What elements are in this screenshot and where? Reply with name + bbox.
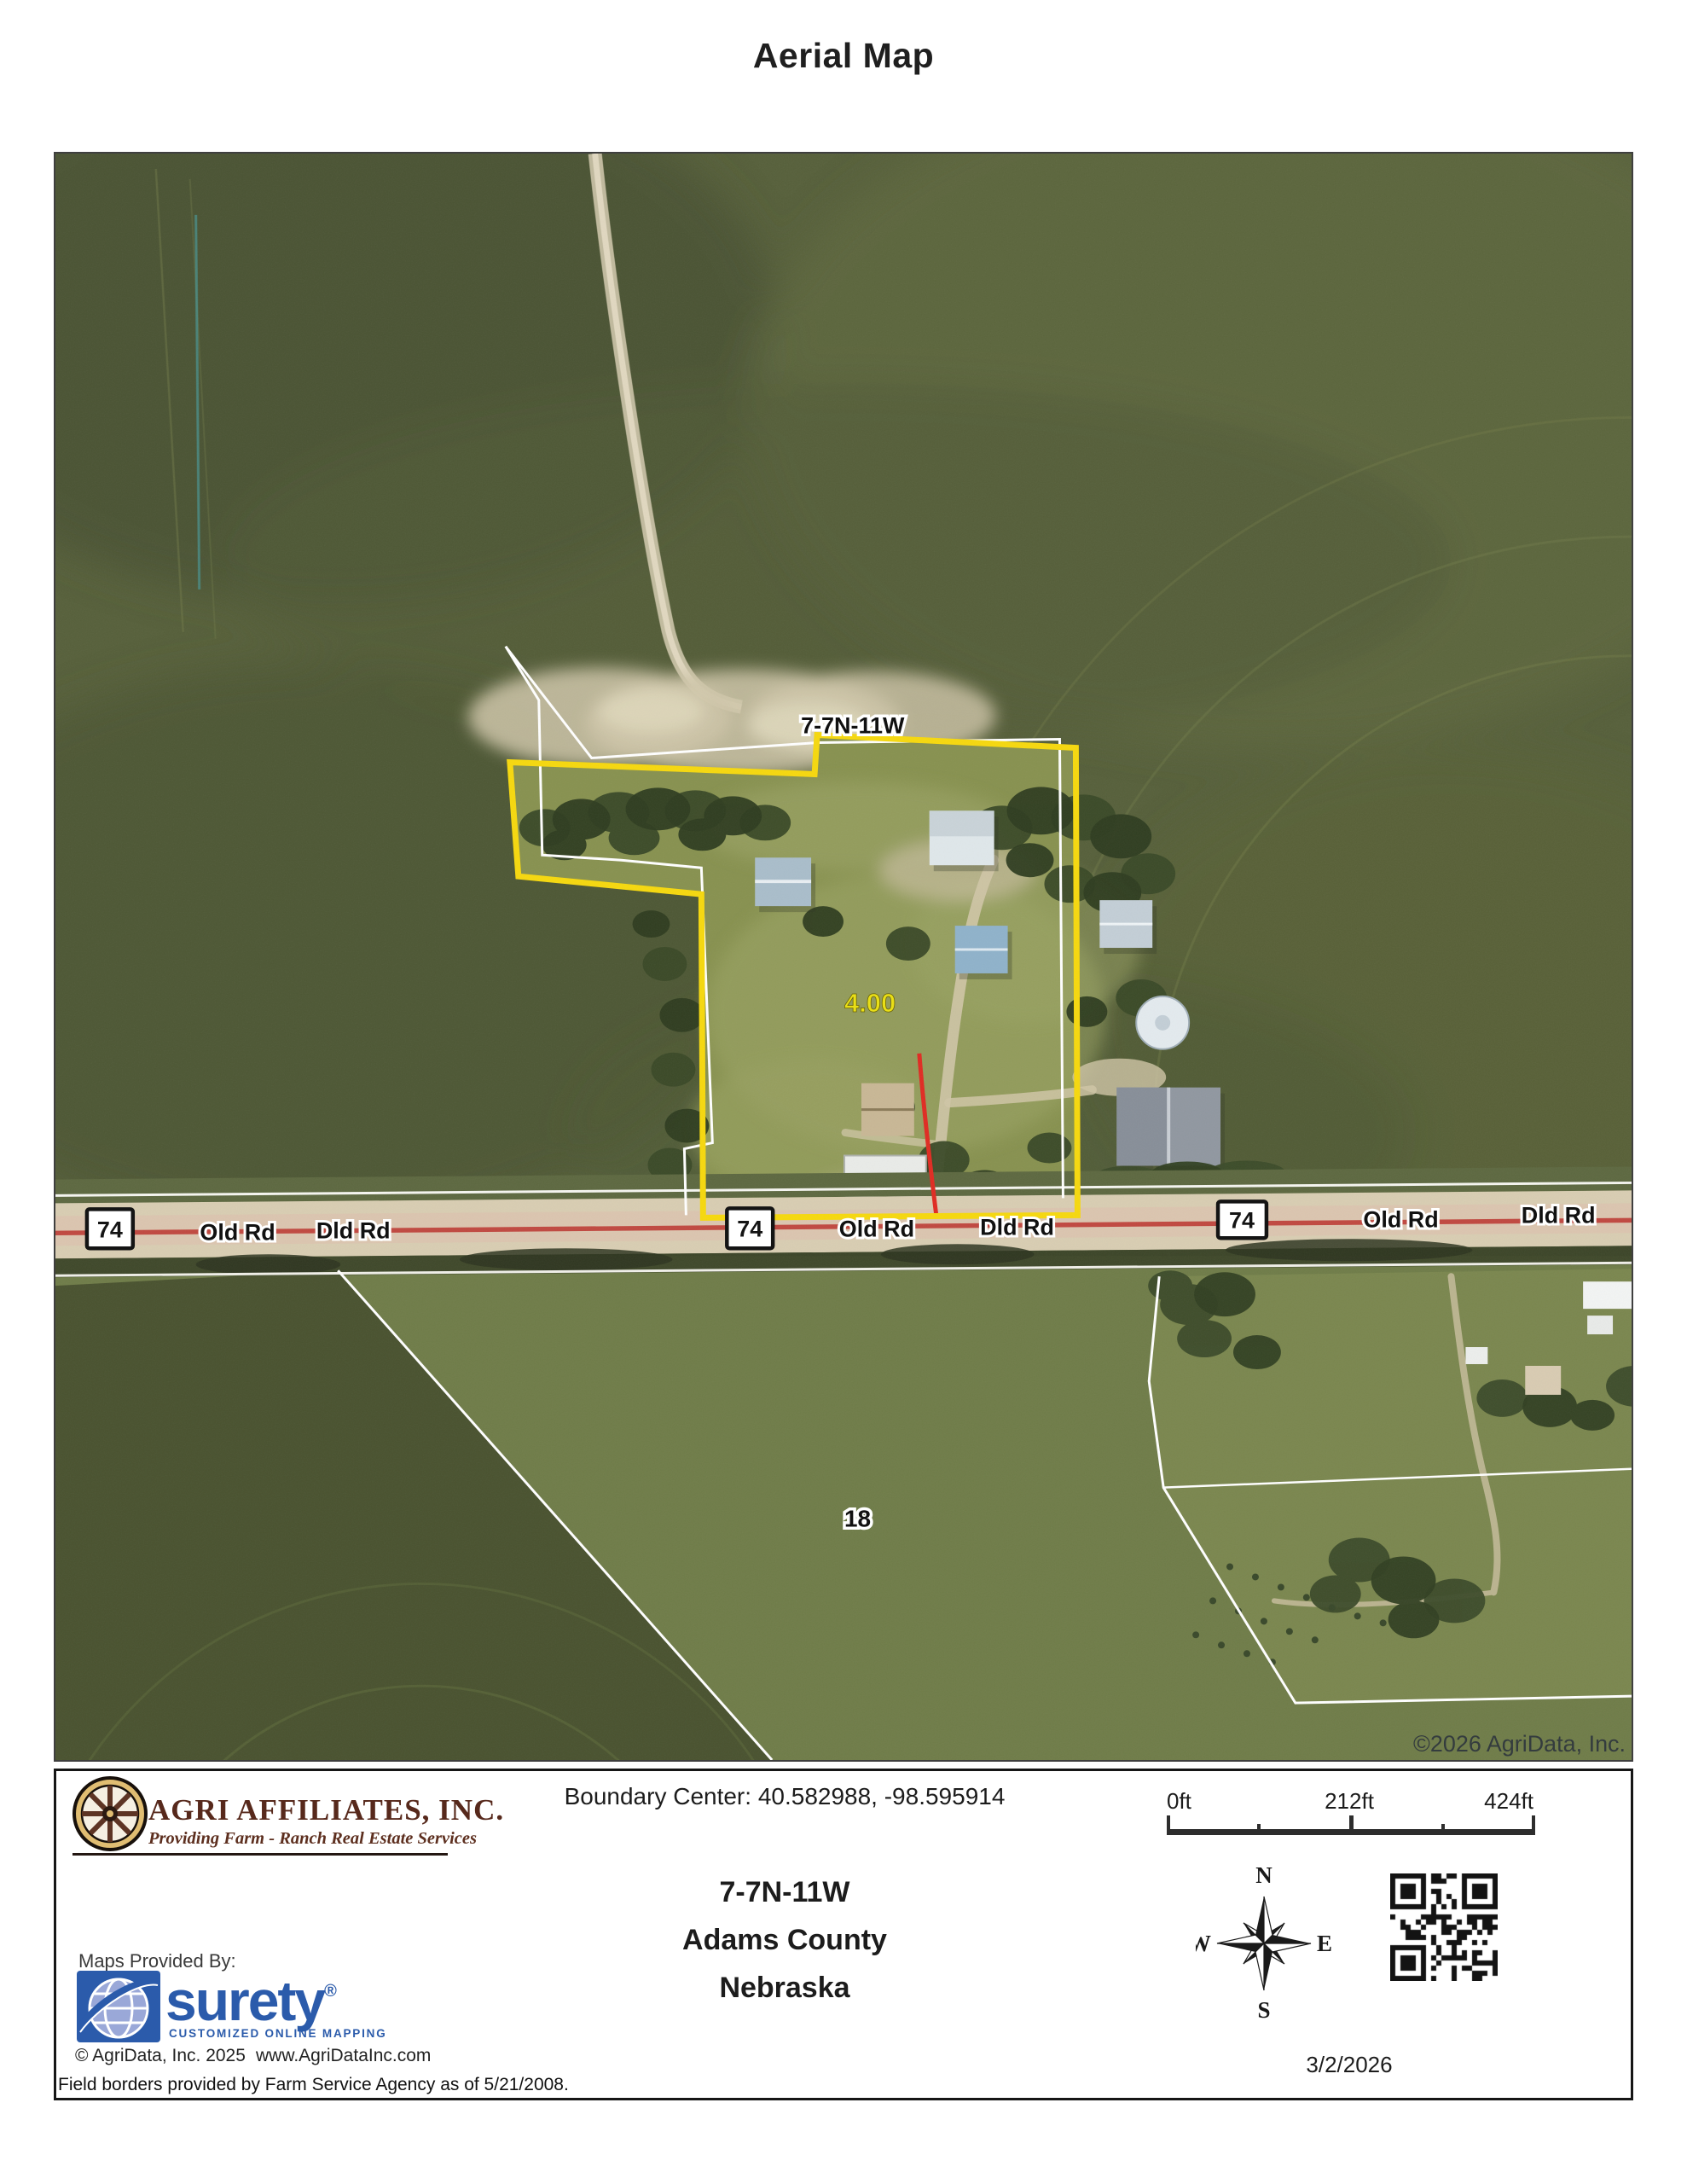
highway-shield-center: 74 — [727, 1208, 773, 1248]
road-label-old-rd: Old Rd — [200, 1219, 275, 1245]
wagon-wheel-icon — [71, 1774, 149, 1853]
location-county: Adams County — [461, 1916, 1109, 1964]
aerial-map: 74 74 74 Old Rd Dld Rd Old Rd Dld Rd Old… — [54, 152, 1633, 1762]
scale-bar — [1167, 1814, 1535, 1836]
agridata-url: www.AgriDataInc.com — [256, 2046, 431, 2066]
agridata-copyright: © AgriData, Inc. 2025 — [75, 2046, 246, 2066]
road-label-old-rd: Old Rd — [839, 1216, 914, 1241]
aerial-map-image: 74 74 74 Old Rd Dld Rd Old Rd Dld Rd Old… — [55, 154, 1632, 1760]
map-copyright-overlay: ©2026 AgriData, Inc. — [1413, 1731, 1626, 1757]
compass-e-label: E — [1317, 1931, 1332, 1956]
company-tagline: Providing Farm - Ranch Real Estate Servi… — [148, 1829, 477, 1849]
acreage-label: 4.00 — [844, 988, 896, 1018]
location-section: 7-7N-11W — [461, 1868, 1109, 1916]
surety-globe-icon — [77, 1971, 160, 2042]
scale-label-start: 0ft — [1167, 1788, 1191, 1815]
location-block: 7-7N-11W Adams County Nebraska — [461, 1868, 1109, 2012]
surety-tagline: CUSTOMIZED ONLINE MAPPING — [169, 2027, 387, 2040]
scale-label-middle: 212ft — [1325, 1788, 1374, 1815]
map-date: 3/2/2026 — [1306, 2052, 1392, 2078]
road-label-old-rd: Old Rd — [1363, 1206, 1438, 1232]
page-title: Aerial Map — [0, 36, 1687, 76]
report-page: Aerial Map — [0, 0, 1687, 2184]
section-township-label: 7-7N-11W — [801, 713, 905, 739]
logo-divider — [72, 1853, 448, 1856]
field-borders-note: Field borders provided by Farm Service A… — [58, 2075, 569, 2095]
highway-shield-label: 74 — [737, 1216, 762, 1241]
compass-n-label: N — [1255, 1864, 1272, 1888]
road-label-dld-rd: Dld Rd — [980, 1214, 1054, 1240]
compass-rose: N S W E — [1196, 1864, 1332, 2022]
surety-wordmark: surety® — [165, 1972, 337, 2029]
highway-shield-left: 74 — [87, 1209, 133, 1248]
compass-s-label: S — [1257, 1997, 1270, 2022]
location-state: Nebraska — [461, 1964, 1109, 2012]
company-name: AGRI AFFILIATES, INC. — [148, 1793, 504, 1827]
highway-shield-right: 74 — [1218, 1201, 1267, 1238]
boundary-center-text: Boundary Center: 40.582988, -98.595914 — [461, 1783, 1109, 1810]
scale-label-end: 424ft — [1484, 1788, 1533, 1815]
highway-shield-label: 74 — [97, 1217, 123, 1242]
qr-code — [1390, 1873, 1498, 1981]
compass-w-label: W — [1196, 1931, 1211, 1956]
road-label-dld-rd: Dld Rd — [316, 1217, 391, 1243]
highway-shield-label: 74 — [1229, 1207, 1255, 1233]
section-number-label: 18 — [844, 1506, 871, 1532]
road-label-dld-rd: Dld Rd — [1522, 1202, 1596, 1228]
